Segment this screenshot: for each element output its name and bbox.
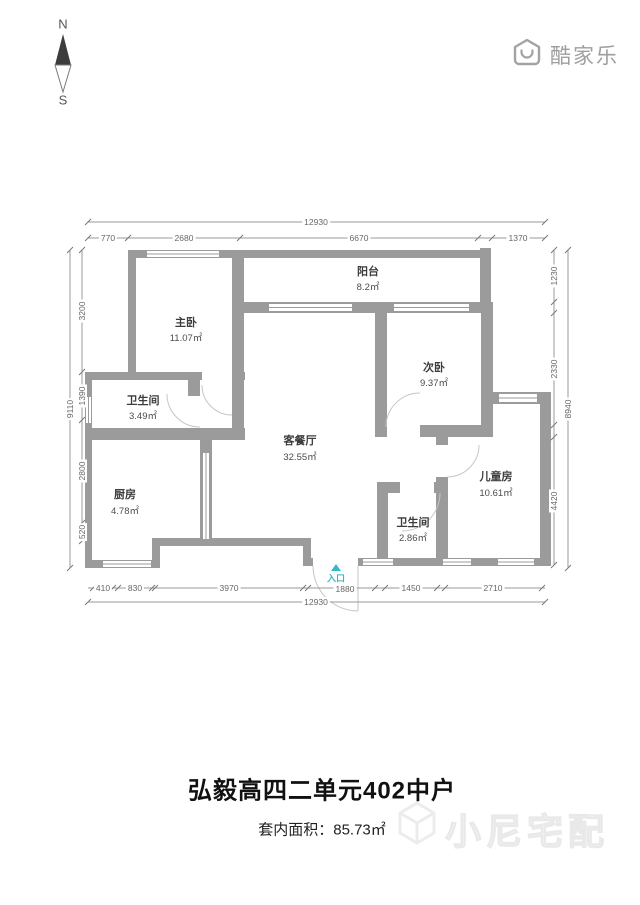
dim-left-0: 3200 xyxy=(77,300,87,323)
dim-top-total: 12930 xyxy=(302,217,330,227)
dim-right-1: 2330 xyxy=(549,358,559,381)
area-value: 85.73㎡ xyxy=(333,822,386,839)
dim-right-total: 8940 xyxy=(563,398,573,421)
plan-area-line: 套内面积：85.73㎡ xyxy=(258,819,386,840)
dim-bottom-4: 1450 xyxy=(400,583,423,593)
area-label: 套内面积： xyxy=(258,822,333,839)
dim-top-3: 1370 xyxy=(507,233,530,243)
dim-right-0: 1230 xyxy=(549,265,559,288)
entrance-label: 入口 xyxy=(327,572,345,585)
cube-logo-icon xyxy=(393,799,441,852)
dim-top-0: 770 xyxy=(99,233,117,243)
dim-right-2: 4420 xyxy=(549,490,559,513)
dim-bottom-5: 2710 xyxy=(482,583,505,593)
dim-left-total: 9110 xyxy=(65,398,75,420)
dim-bottom-0: 410 xyxy=(94,583,112,593)
dim-bottom-total: 12930 xyxy=(302,597,330,607)
watermark-text: 小尼宅配 xyxy=(445,803,609,855)
dim-top-1: 2680 xyxy=(173,233,196,243)
plan-title: 弘毅高四二单元402中户 xyxy=(188,771,456,806)
dim-bottom-2: 3970 xyxy=(218,583,241,593)
dim-left-1: 1390 xyxy=(77,385,87,408)
entrance-arrow-icon xyxy=(331,564,341,571)
floorplan-page: N S 酷家乐 xyxy=(0,0,640,905)
dim-bottom-3: 1880 xyxy=(334,584,357,594)
dim-bottom-1: 830 xyxy=(126,583,144,593)
floor-plan-drawing xyxy=(0,0,640,905)
dim-left-2: 2800 xyxy=(77,460,87,483)
dim-left-3: 520 xyxy=(77,523,87,541)
dim-top-2: 6670 xyxy=(348,233,371,243)
